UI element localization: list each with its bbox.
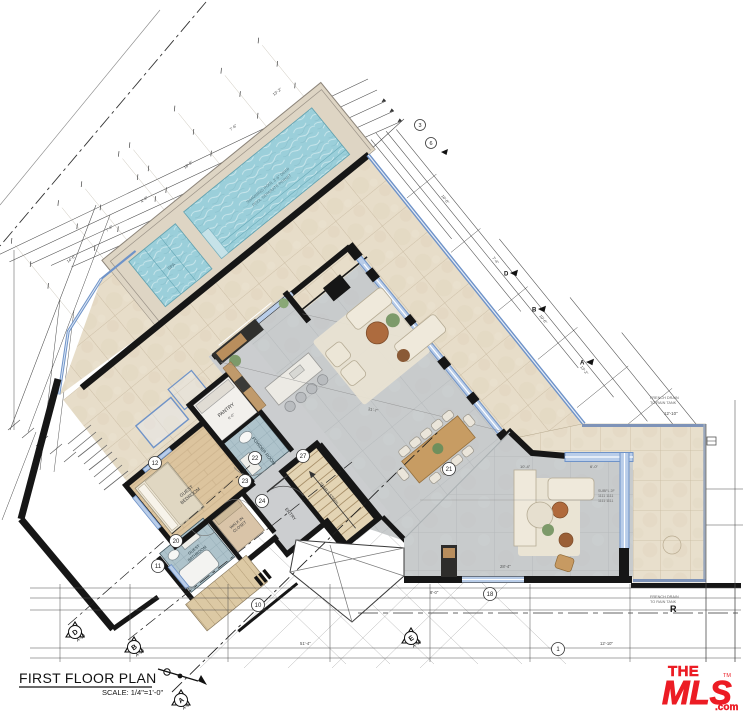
svg-text:SCALE: 1/4"=1'-0": SCALE: 1/4"=1'-0" bbox=[102, 688, 164, 697]
svg-text:1111 1111: 1111 1111 bbox=[598, 494, 613, 498]
svg-text:TO RAIN TANK: TO RAIN TANK bbox=[650, 600, 677, 604]
svg-text:10'-4": 10'-4" bbox=[520, 464, 531, 469]
svg-text:1111 1111: 1111 1111 bbox=[598, 499, 613, 503]
svg-text:R: R bbox=[670, 604, 677, 614]
svg-text:51'-4": 51'-4" bbox=[300, 641, 311, 646]
svg-text:21: 21 bbox=[446, 467, 453, 473]
svg-text:11: 11 bbox=[155, 564, 162, 570]
svg-text:8'-0": 8'-0" bbox=[430, 590, 439, 595]
svg-text:3: 3 bbox=[418, 123, 421, 129]
svg-text:28'-4": 28'-4" bbox=[500, 564, 511, 569]
svg-text:TM: TM bbox=[723, 673, 731, 679]
svg-text:FIRST FLOOR PLAN: FIRST FLOOR PLAN bbox=[19, 670, 157, 686]
svg-text:12'-10": 12'-10" bbox=[664, 411, 678, 416]
svg-text:TO RAIN TANK: TO RAIN TANK bbox=[650, 401, 677, 405]
svg-text:.com: .com bbox=[715, 702, 738, 713]
svg-text:12: 12 bbox=[152, 461, 159, 467]
svg-text:20: 20 bbox=[173, 539, 180, 545]
svg-text:12'-10": 12'-10" bbox=[600, 641, 614, 646]
svg-text:A: A bbox=[580, 361, 585, 367]
svg-text:6: 6 bbox=[429, 141, 432, 147]
svg-text:FRENCH DRAIN: FRENCH DRAIN bbox=[650, 396, 679, 400]
svg-text:B: B bbox=[532, 308, 537, 314]
svg-text:SUBFL 2F: SUBFL 2F bbox=[598, 489, 615, 493]
svg-text:18: 18 bbox=[487, 592, 494, 598]
svg-text:24: 24 bbox=[259, 499, 266, 505]
svg-text:6'-0": 6'-0" bbox=[590, 464, 599, 469]
svg-text:10: 10 bbox=[255, 603, 262, 609]
svg-text:27: 27 bbox=[300, 454, 307, 460]
svg-text:D: D bbox=[504, 272, 509, 278]
svg-text:FRENCH DRAIN: FRENCH DRAIN bbox=[650, 595, 679, 599]
svg-text:22: 22 bbox=[252, 456, 259, 462]
svg-text:23: 23 bbox=[242, 479, 249, 485]
